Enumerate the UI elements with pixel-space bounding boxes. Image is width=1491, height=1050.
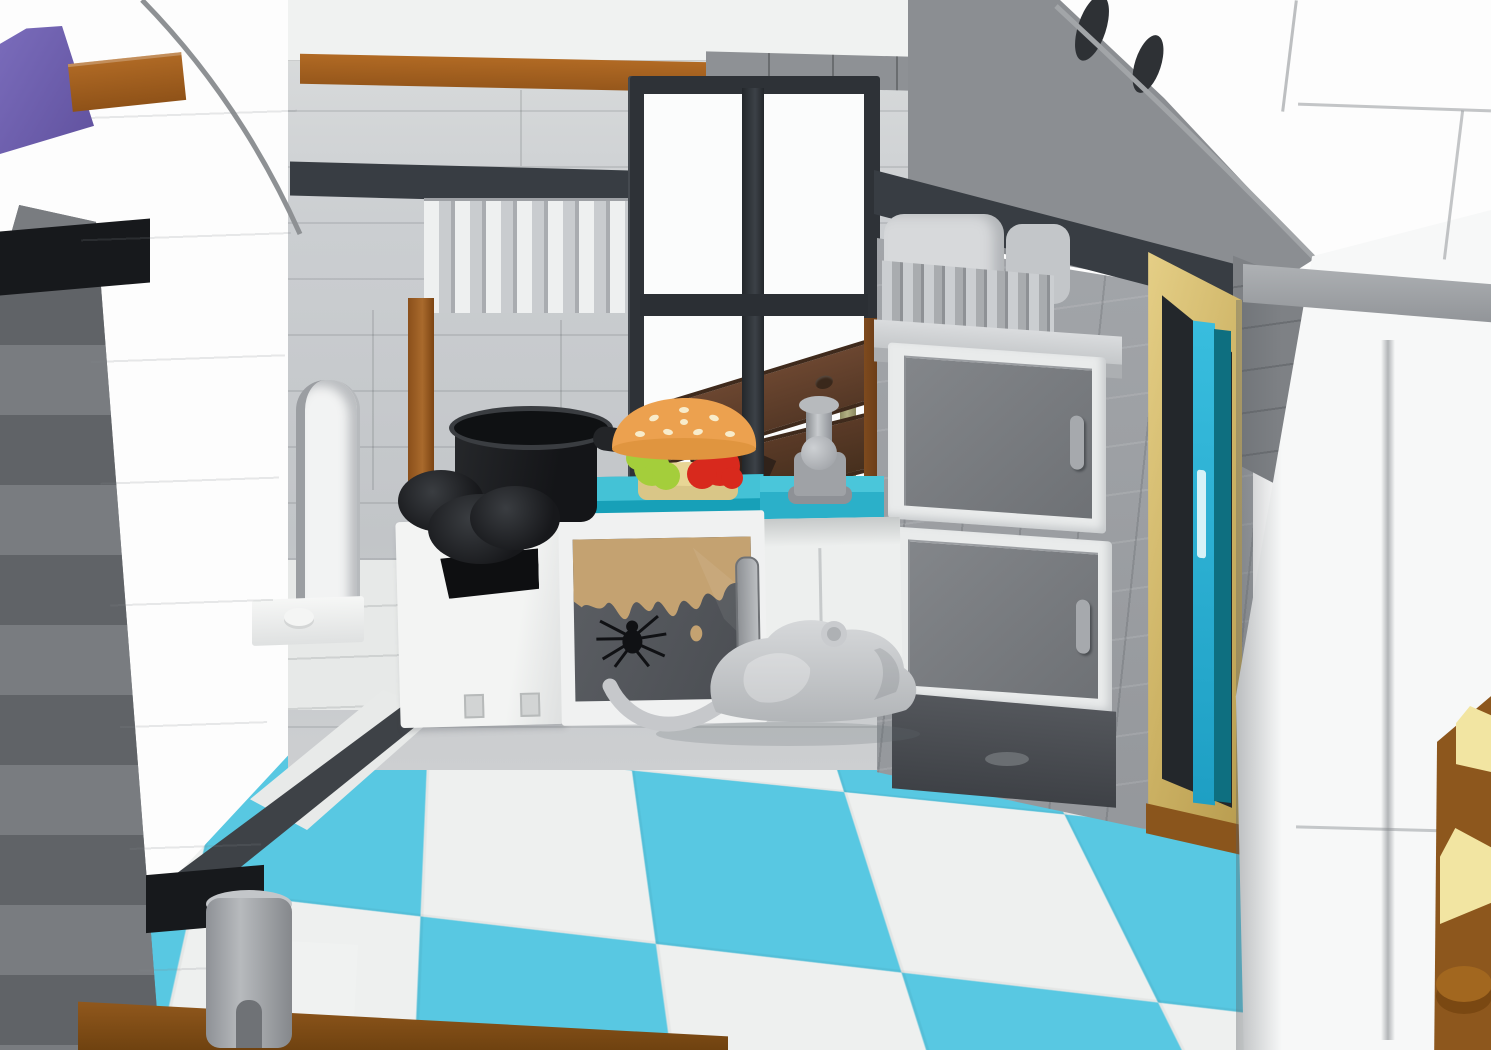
faucet-knob (801, 436, 837, 470)
sink-basin (754, 517, 900, 548)
cabinet-handle (1076, 599, 1090, 654)
bun-rim (612, 438, 756, 460)
stud (985, 752, 1029, 766)
faucet-cap (799, 396, 839, 414)
cabinet-door (904, 355, 1092, 518)
rat-tail (610, 686, 716, 724)
hinge-tab (520, 692, 541, 717)
wall-seam (1381, 340, 1395, 1040)
stud (1436, 966, 1491, 1002)
lego-kitchen-scene: Interior corner of a LEGO creepy diner k… (0, 0, 1491, 1050)
rat-figure (598, 604, 950, 752)
stove-burner (470, 486, 560, 550)
door-window-slit (1197, 469, 1206, 558)
hinge-tab (464, 694, 485, 719)
rat-ear-inner (827, 627, 841, 641)
burger (602, 388, 766, 516)
teal-door-bright (1193, 321, 1215, 806)
cabinet-upper (888, 342, 1106, 533)
cabinet-handle (1070, 415, 1084, 470)
pot-rim (449, 406, 613, 450)
wall-edge-shadow (1236, 300, 1282, 1050)
teal-door-dark (1214, 329, 1231, 803)
cylinder-notch (236, 1000, 262, 1048)
